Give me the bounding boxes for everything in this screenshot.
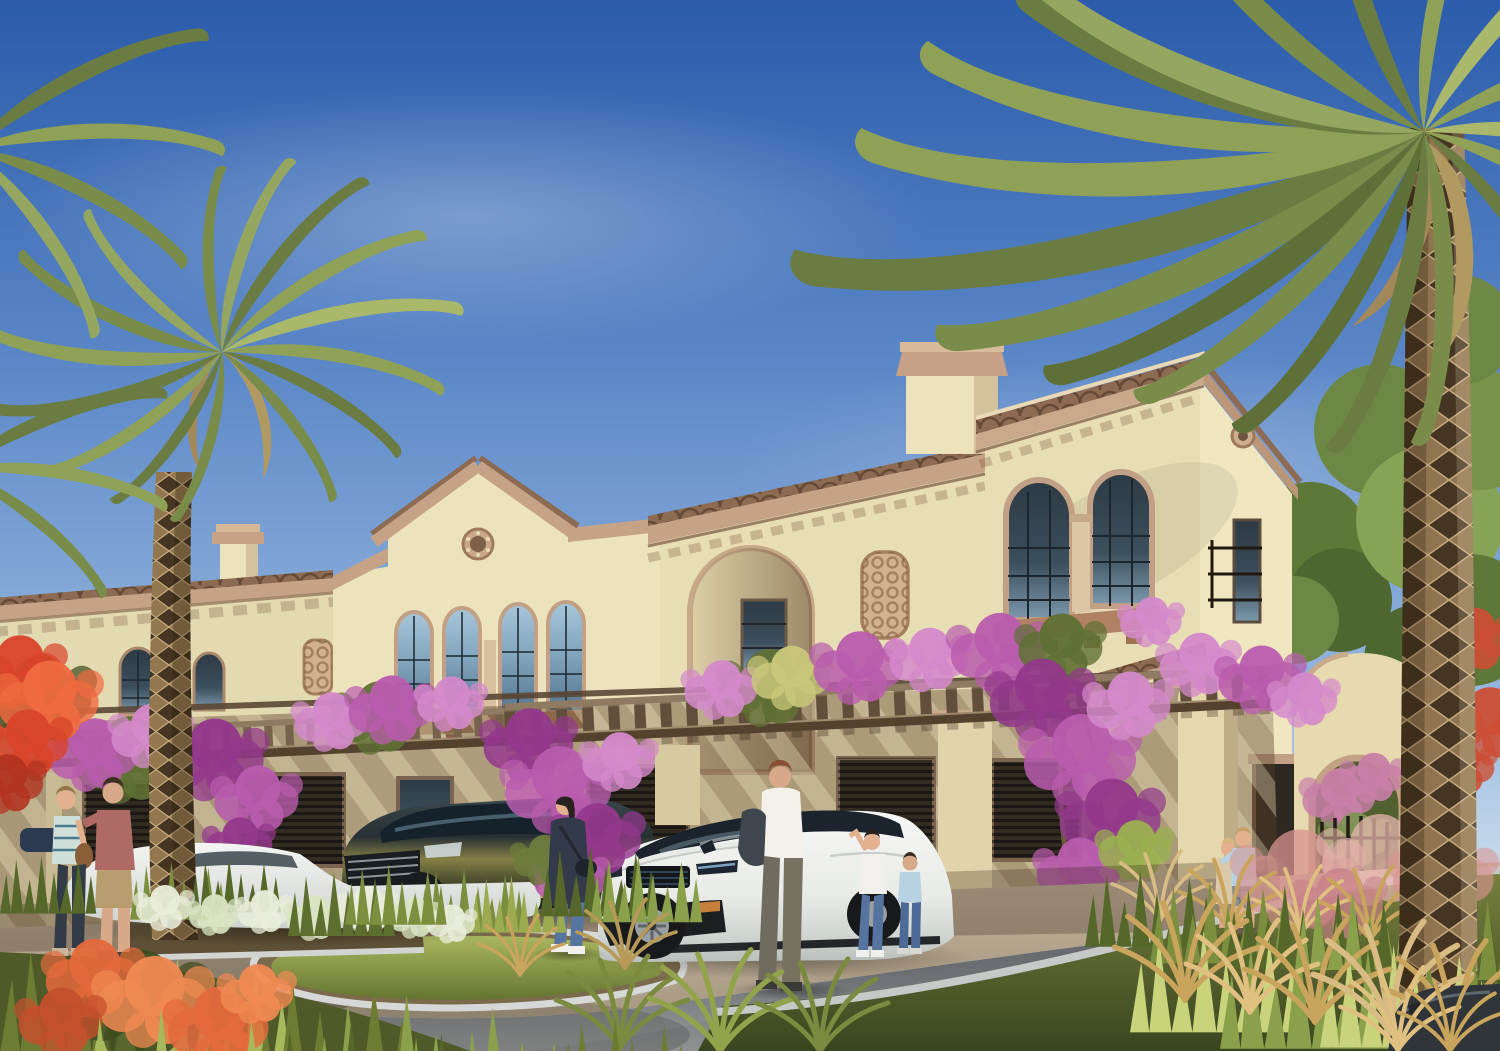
haze-cloud — [10, 85, 930, 345]
draped-jacket — [738, 809, 766, 867]
architectural-rendering — [0, 0, 1500, 1051]
barred-window — [1234, 520, 1260, 622]
scene-canvas — [0, 0, 1500, 1051]
arched-window — [194, 653, 224, 710]
